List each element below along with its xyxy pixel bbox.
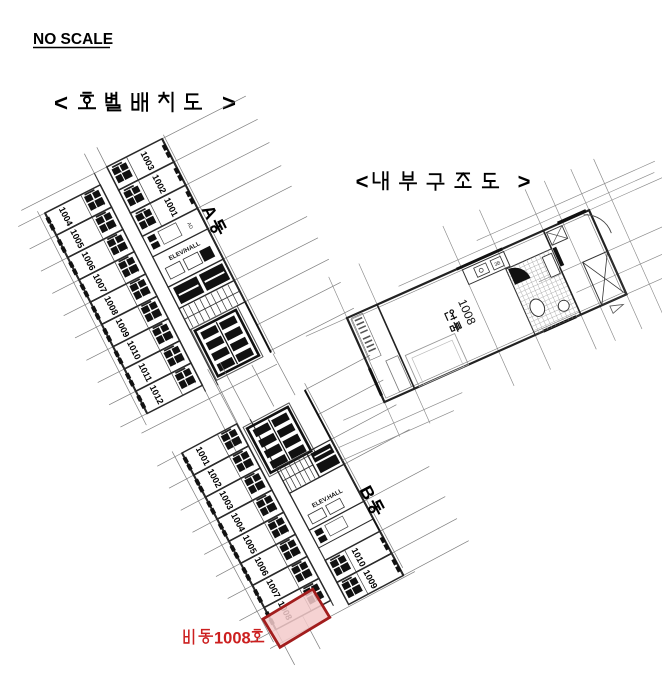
svg-text:1005: 1005: [68, 228, 86, 250]
svg-text:1003: 1003: [138, 150, 156, 172]
svg-text:AD: AD: [185, 221, 194, 230]
svg-text:1010: 1010: [125, 339, 143, 361]
svg-text:NO SCALE: NO SCALE: [33, 31, 113, 48]
svg-text:1006: 1006: [252, 555, 270, 577]
svg-text:1005: 1005: [241, 533, 259, 555]
svg-text:1008: 1008: [214, 630, 251, 648]
svg-text:<: <: [54, 90, 68, 117]
svg-text:1002: 1002: [205, 467, 223, 489]
svg-text:1012: 1012: [148, 383, 166, 405]
svg-text:1008: 1008: [102, 294, 120, 316]
svg-text:1007: 1007: [91, 272, 109, 294]
svg-text:1009: 1009: [114, 317, 132, 339]
svg-text:1006: 1006: [80, 250, 98, 272]
svg-text:>: >: [222, 90, 236, 117]
svg-text:1001: 1001: [162, 196, 180, 218]
svg-text:1001: 1001: [194, 445, 212, 467]
svg-text:1004: 1004: [57, 205, 75, 227]
svg-text:1007: 1007: [264, 577, 282, 599]
svg-text:<: <: [356, 169, 369, 194]
svg-text:A: A: [198, 202, 222, 223]
svg-text:>: >: [518, 169, 531, 194]
svg-text:1004: 1004: [229, 511, 247, 533]
svg-text:1011: 1011: [136, 361, 154, 383]
svg-text:1003: 1003: [217, 489, 235, 511]
svg-text:1002: 1002: [150, 173, 168, 195]
